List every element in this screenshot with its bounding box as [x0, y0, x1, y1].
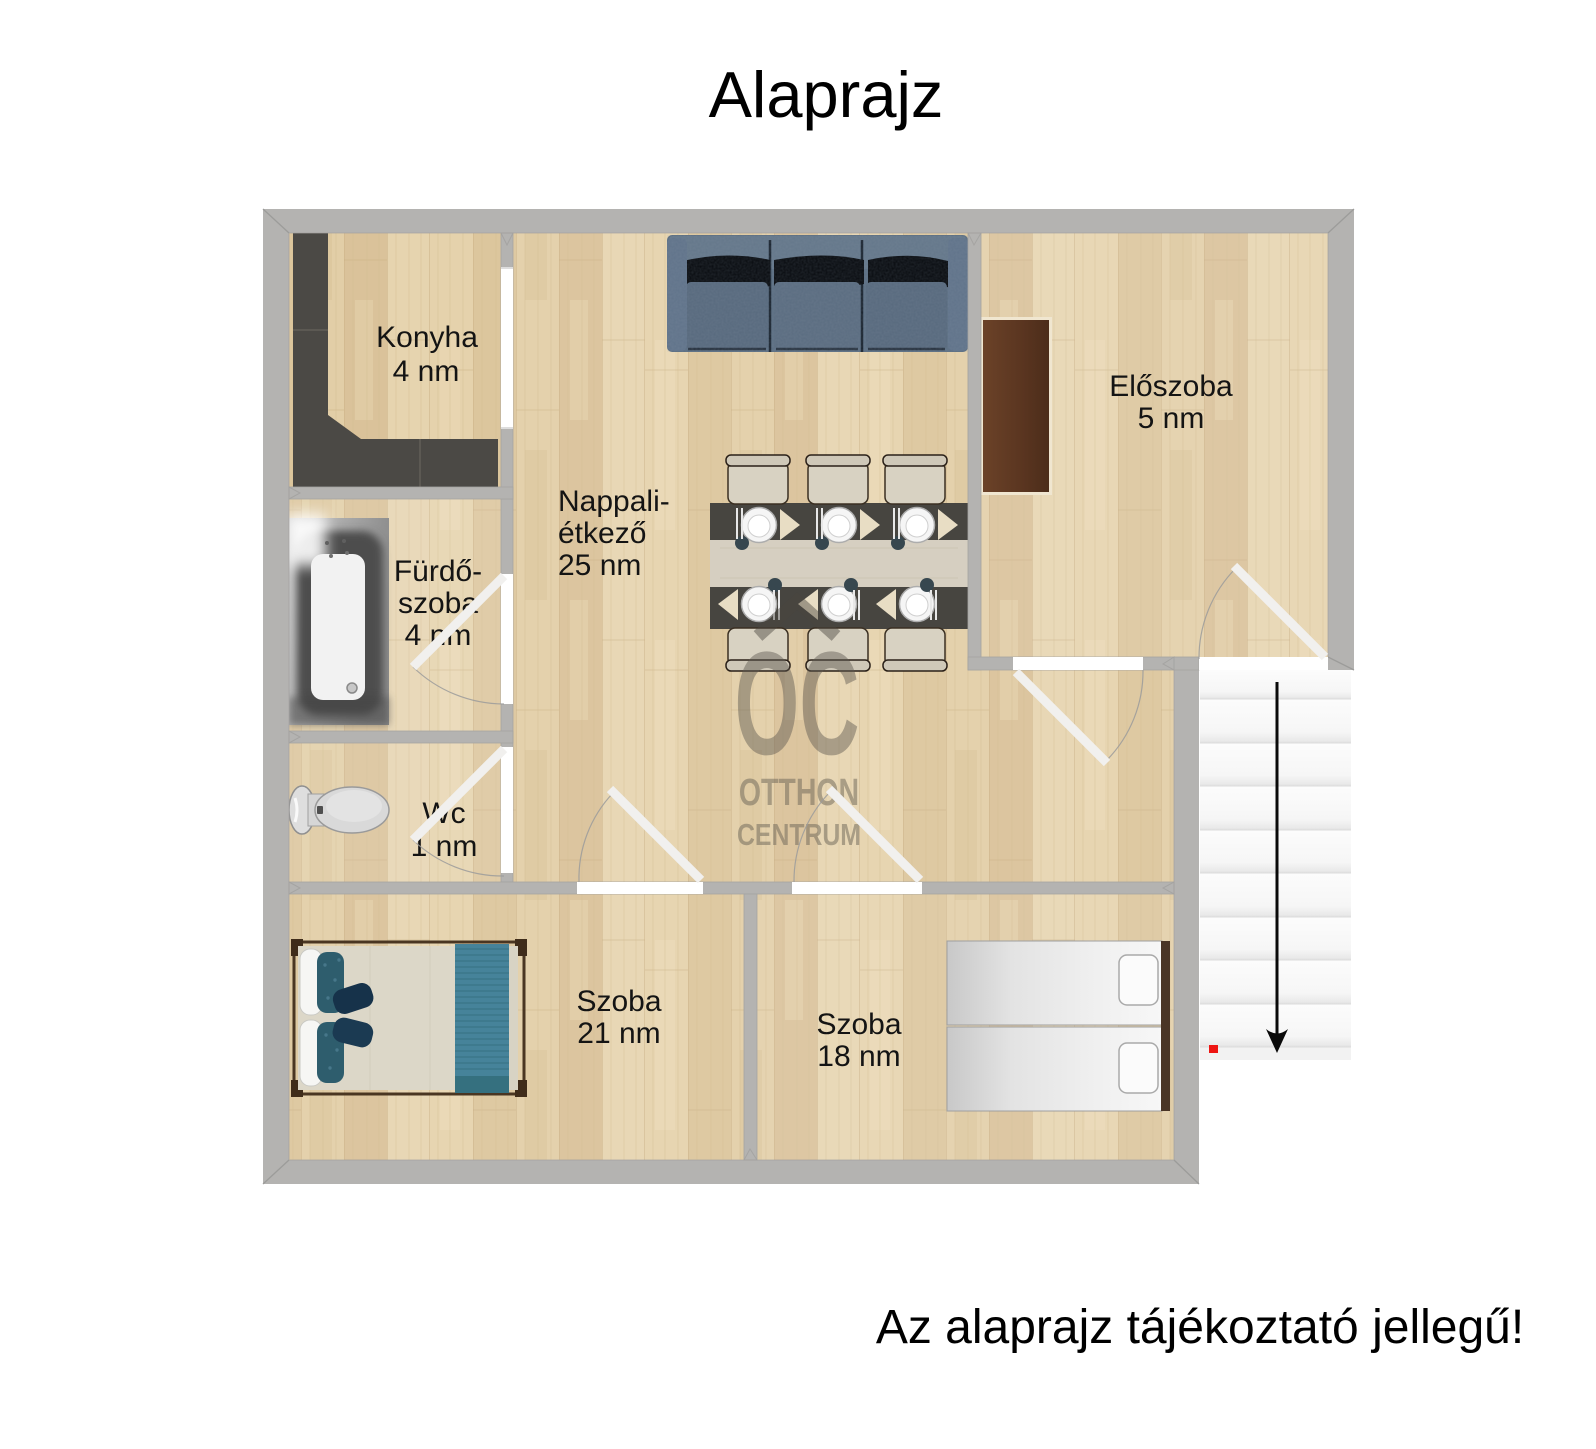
svg-text:Szoba: Szoba	[576, 985, 661, 1018]
svg-text:18 nm: 18 nm	[817, 1040, 900, 1073]
svg-text:Előszoba: Előszoba	[1109, 370, 1233, 403]
svg-text:Konyha: Konyha	[376, 321, 478, 354]
svg-text:Az alaprajz tájékoztató jelleg: Az alaprajz tájékoztató jellegű!	[876, 1301, 1524, 1354]
svg-text:OTTHON: OTTHON	[739, 772, 859, 814]
svg-text:Szoba: Szoba	[816, 1008, 901, 1041]
svg-text:OC: OC	[734, 622, 859, 786]
svg-text:Alaprajz: Alaprajz	[709, 58, 944, 131]
svg-text:21 nm: 21 nm	[577, 1017, 660, 1050]
svg-text:Nappali-: Nappali-	[558, 485, 670, 518]
svg-text:étkező: étkező	[558, 517, 646, 550]
svg-text:Fürdő-: Fürdő-	[394, 555, 482, 588]
svg-text:5 nm: 5 nm	[1138, 402, 1205, 435]
svg-text:25 nm: 25 nm	[558, 549, 641, 582]
svg-text:4 nm: 4 nm	[393, 355, 460, 388]
